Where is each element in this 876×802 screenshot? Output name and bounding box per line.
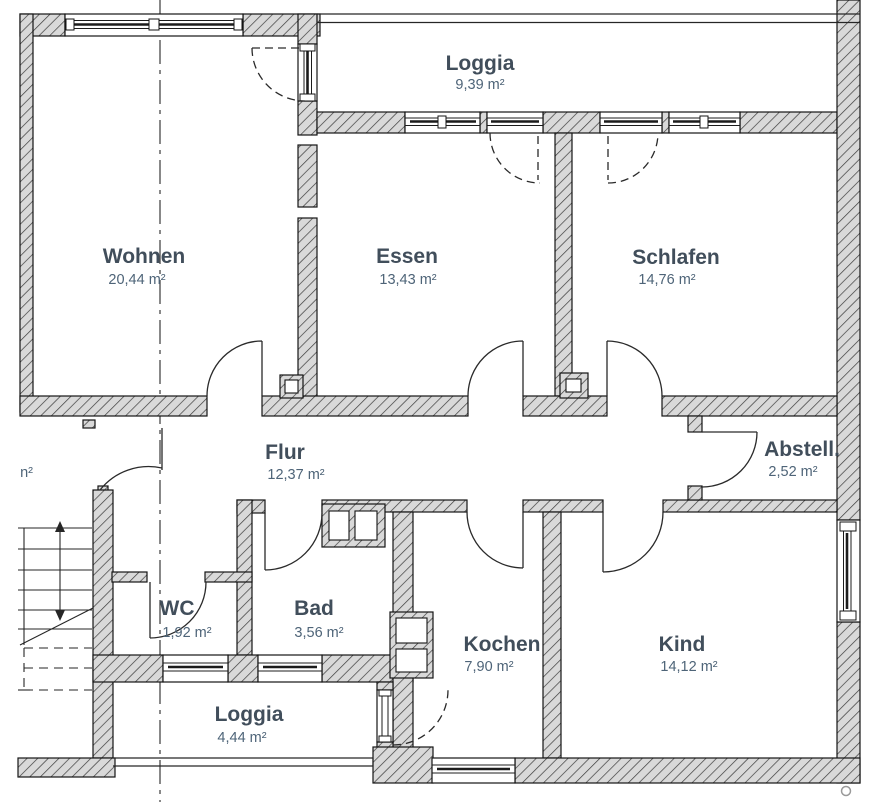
room-area-schlafen: 14,76 m²: [638, 272, 695, 288]
room-name-bad: Bad: [294, 597, 334, 620]
balcony-door-wohnen-frame: [298, 44, 317, 101]
drawing-handle-circle: [842, 787, 851, 796]
balcony-door-essen-frame: [487, 112, 543, 133]
room-name-kind: Kind: [659, 633, 706, 656]
room-name-loggia-bottom: Loggia: [215, 703, 284, 726]
room-name-essen: Essen: [376, 245, 438, 268]
room-name-loggia-top: Loggia: [446, 52, 515, 75]
room-area-kind: 14,12 m²: [660, 659, 717, 675]
window-kochen: [432, 758, 515, 783]
room-name-schlafen: Schlafen: [632, 246, 720, 269]
room-name-kochen: Kochen: [463, 633, 540, 656]
room-name-flur: Flur: [265, 441, 305, 464]
cropped-area-label: n²: [20, 465, 33, 481]
room-area-abstell: 2,52 m²: [768, 464, 817, 480]
floor-plan-canvas: Loggia 9,39 m² Wohnen 20,44 m² Essen 13,…: [0, 0, 876, 802]
window-schlafen-loggia: [669, 112, 740, 133]
window-wohnen-top: [65, 14, 243, 36]
room-area-bad: 3,56 m²: [294, 625, 343, 641]
window-bad: [258, 655, 322, 682]
room-area-kochen: 7,90 m²: [464, 659, 513, 675]
room-name-wohnen: Wohnen: [103, 245, 185, 268]
room-area-loggia-top: 9,39 m²: [455, 77, 504, 93]
room-area-wc: 1,92 m²: [162, 625, 211, 641]
room-name-wc: WC: [160, 597, 195, 620]
window-wc: [163, 655, 228, 682]
balcony-door-kochen-frame: [377, 690, 393, 742]
room-area-wohnen: 20,44 m²: [108, 272, 165, 288]
window-essen-loggia: [405, 112, 480, 133]
floor-plan-drawing: Loggia 9,39 m² Wohnen 20,44 m² Essen 13,…: [0, 0, 876, 802]
room-area-flur: 12,37 m²: [267, 467, 324, 483]
window-kind: [837, 520, 860, 622]
balcony-door-schlafen-frame: [600, 112, 662, 133]
room-area-essen: 13,43 m²: [379, 272, 436, 288]
room-area-loggia-bottom: 4,44 m²: [217, 730, 266, 746]
room-name-abstell: Abstell.: [764, 438, 840, 461]
